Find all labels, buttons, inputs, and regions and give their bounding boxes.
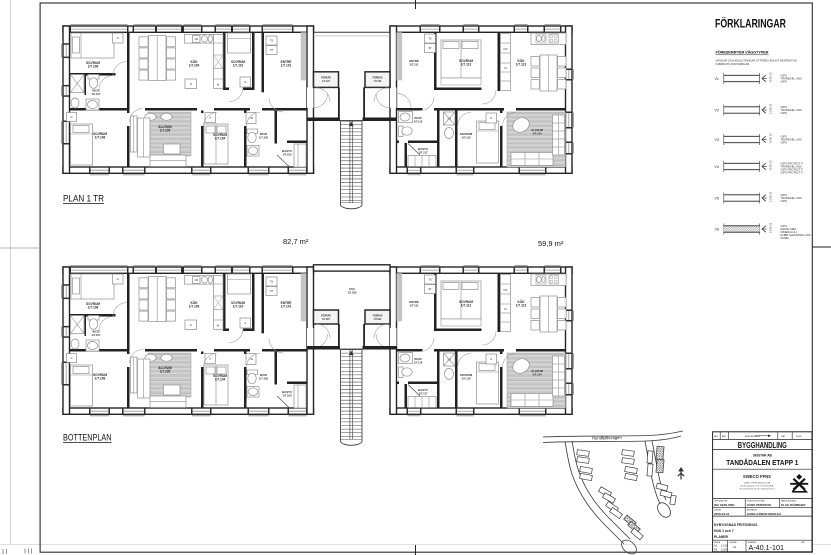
- svg-text:ANSVARIG: ANSVARIG: [747, 508, 758, 511]
- svg-text:FÖRESKRIFTER VÄGGTYPER: FÖRESKRIFTER VÄGGTYPER: [716, 50, 769, 55]
- svg-text:RITAD/KONSTR AV: RITAD/KONSTR AV: [747, 499, 765, 502]
- svg-text:1/7.022: 1/7.022: [347, 291, 357, 295]
- svg-text:V2: V2: [715, 108, 719, 112]
- svg-text:PLANER: PLANER: [714, 535, 728, 539]
- svg-text:1:200: 1:200: [721, 547, 728, 551]
- svg-text:FABRIKATS ANVISNINGAR: FABRIKATS ANVISNINGAR: [716, 62, 750, 66]
- svg-text:BESKRIVNING: BESKRIVNING: [745, 436, 760, 438]
- svg-text:GIPS: GIPS: [781, 80, 788, 84]
- svg-text:DATUM: DATUM: [714, 508, 721, 511]
- svg-text:2006-03-24: 2006-03-24: [714, 512, 730, 516]
- svg-text:A3: A3: [714, 547, 718, 551]
- svg-text:UPPDRAG NR: UPPDRAG NR: [714, 499, 728, 502]
- svg-text:GIPS: GIPS: [781, 141, 788, 145]
- svg-text:1:100: 1:100: [721, 544, 728, 548]
- svg-text:A1: A1: [714, 544, 718, 548]
- svg-text:SIGN: SIGN: [796, 436, 802, 438]
- svg-text:1/7.122: 1/7.122: [374, 81, 382, 83]
- svg-text:FÖRRÅD: FÖRRÅD: [373, 315, 383, 318]
- svg-text:A1: A1: [733, 545, 737, 549]
- svg-text:Hundfjällsvägen: Hundfjällsvägen: [592, 435, 623, 441]
- svg-text:1/7.021: 1/7.021: [322, 319, 330, 321]
- svg-text:PANEL: PANEL: [781, 236, 790, 240]
- svg-text:A-40.1-101: A-40.1-101: [749, 543, 785, 552]
- svg-text:HANS-GÖRAN NISSLEÅ: HANS-GÖRAN NISSLEÅ: [747, 511, 782, 516]
- svg-text:HANDLÄGGARE: HANDLÄGGARE: [781, 499, 797, 502]
- svg-text:V3: V3: [715, 138, 719, 142]
- svg-text:13 95 13: 13 95 13: [769, 72, 773, 83]
- svg-text:SWECO FFNS Arkitekter AB: SWECO FFNS Arkitekter AB: [744, 481, 771, 484]
- svg-text:BOTTENPLAN: BOTTENPLAN: [63, 433, 112, 443]
- svg-text:13 95 13: 13 95 13: [769, 222, 773, 233]
- svg-text:FÖRRÅD: FÖRRÅD: [373, 77, 383, 80]
- svg-text:82,7 m²: 82,7 m²: [283, 237, 309, 246]
- svg-text:BYGGHANDLING: BYGGHANDLING: [738, 441, 787, 450]
- svg-text:KLAS WÄRNHED: KLAS WÄRNHED: [781, 503, 806, 507]
- svg-text:GIPS PROTECT F: GIPS PROTECT F: [781, 171, 804, 175]
- svg-text:V6: V6: [715, 227, 719, 231]
- svg-text:HUS 1 och 7: HUS 1 och 7: [714, 529, 734, 533]
- svg-text:NYBYGGNAD FRITIDSHUS: NYBYGGNAD FRITIDSHUS: [714, 523, 758, 527]
- svg-text:GIPS: GIPS: [781, 111, 788, 115]
- svg-text:13 95 13: 13 95 13: [769, 133, 773, 144]
- svg-text:13 95 13: 13 95 13: [769, 160, 773, 171]
- svg-text:HANS PERSSON: HANS PERSSON: [747, 503, 771, 507]
- svg-text:FÖRKLARINGAR: FÖRKLARINGAR: [715, 18, 787, 31]
- svg-text:13 95 13: 13 95 13: [769, 191, 773, 202]
- svg-text:IDA SEDLUND: IDA SEDLUND: [714, 503, 735, 507]
- svg-text:GIPS: GIPS: [781, 199, 788, 203]
- svg-text:SKISTAR AB: SKISTAR AB: [753, 454, 773, 458]
- svg-text:1/7.121: 1/7.121: [322, 81, 330, 83]
- svg-text:SKALA: SKALA: [714, 541, 721, 544]
- svg-text:DAT: DAT: [781, 435, 786, 438]
- svg-text:59,9 m²: 59,9 m²: [538, 239, 564, 248]
- svg-text:Norrbackagatan 1 B, 792 32 MOR: Norrbackagatan 1 B, 792 32 MORA: [741, 484, 774, 487]
- svg-text:V4: V4: [715, 165, 719, 169]
- svg-text:FÖRRÅD: FÖRRÅD: [321, 77, 331, 80]
- svg-text:BET: BET: [714, 436, 719, 438]
- svg-text:1/7.022: 1/7.022: [374, 319, 382, 321]
- svg-text:ANT: ANT: [722, 435, 727, 438]
- svg-text:13 95 13: 13 95 13: [769, 103, 773, 114]
- svg-text:V5: V5: [715, 196, 719, 200]
- svg-text:V1: V1: [715, 77, 719, 81]
- svg-text:Tel 0250-59 69 50, Fax 0250-59: Tel 0250-59 69 50, Fax 0250-59 69 51: [739, 488, 775, 490]
- svg-text:FÖRRÅD: FÖRRÅD: [321, 315, 331, 318]
- svg-text:SWECO FFNS: SWECO FFNS: [743, 474, 771, 479]
- svg-text:TANDÅDALEN ETAPP 1: TANDÅDALEN ETAPP 1: [726, 458, 798, 467]
- svg-text:PLAN 1 TR: PLAN 1 TR: [63, 194, 104, 204]
- svg-text:FORMAT: FORMAT: [729, 541, 738, 544]
